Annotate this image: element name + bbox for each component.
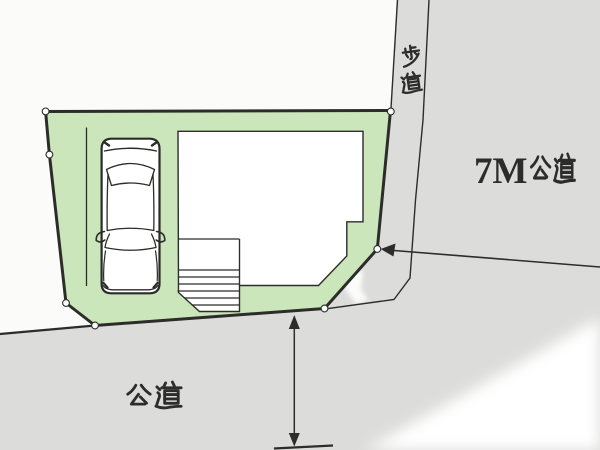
svg-text:7M: 7M	[474, 151, 527, 192]
